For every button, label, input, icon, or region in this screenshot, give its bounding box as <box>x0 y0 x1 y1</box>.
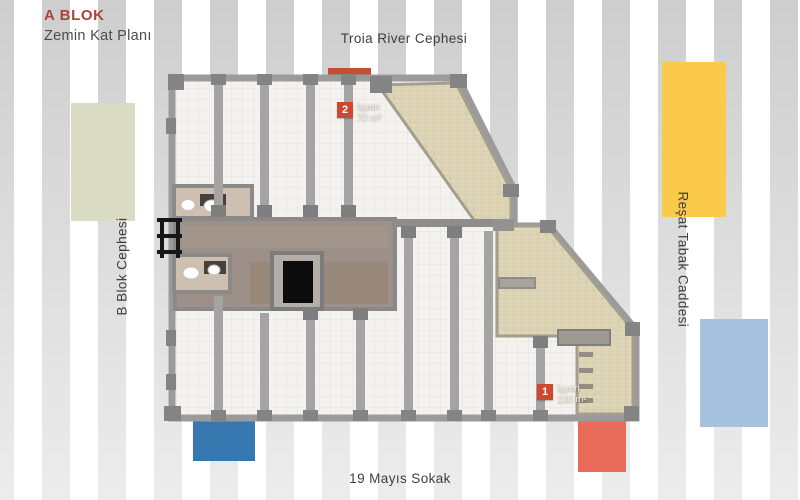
street-label-top: Troia River Cephesi <box>304 31 504 46</box>
elevator-shaft <box>272 253 322 309</box>
facade-marker-light-blue <box>700 319 768 427</box>
unit-1-text: İşyeri 130 m² <box>557 384 587 406</box>
unit-label-2[interactable]: 2 İşyeri 70 m² <box>337 102 381 124</box>
floor-plan-page: 2 İşyeri 70 m² 1 İşyeri 130 m² A BLOK Ze… <box>0 0 800 500</box>
street-label-left: B Blok Cephesi <box>115 202 130 332</box>
block-title: A BLOK <box>44 7 152 24</box>
street-label-right: Reşat Tabak Caddesi <box>676 192 691 322</box>
unit-2-area: 70 m² <box>357 113 381 124</box>
unit-1-badge[interactable]: 1 <box>537 384 553 400</box>
street-label-bottom: 19 Mayıs Sokak <box>302 471 498 486</box>
header: A BLOK Zemin Kat Planı <box>44 7 152 44</box>
unit-2-badge[interactable]: 2 <box>337 102 353 118</box>
unit-2-text: İşyeri 70 m² <box>357 102 381 124</box>
plan-title: Zemin Kat Planı <box>44 28 152 44</box>
floor-plan-drawing <box>140 50 680 435</box>
unit-label-1[interactable]: 1 İşyeri 130 m² <box>537 384 587 406</box>
unit-1-area: 130 m² <box>557 395 587 406</box>
bathroom-lower <box>174 255 230 292</box>
